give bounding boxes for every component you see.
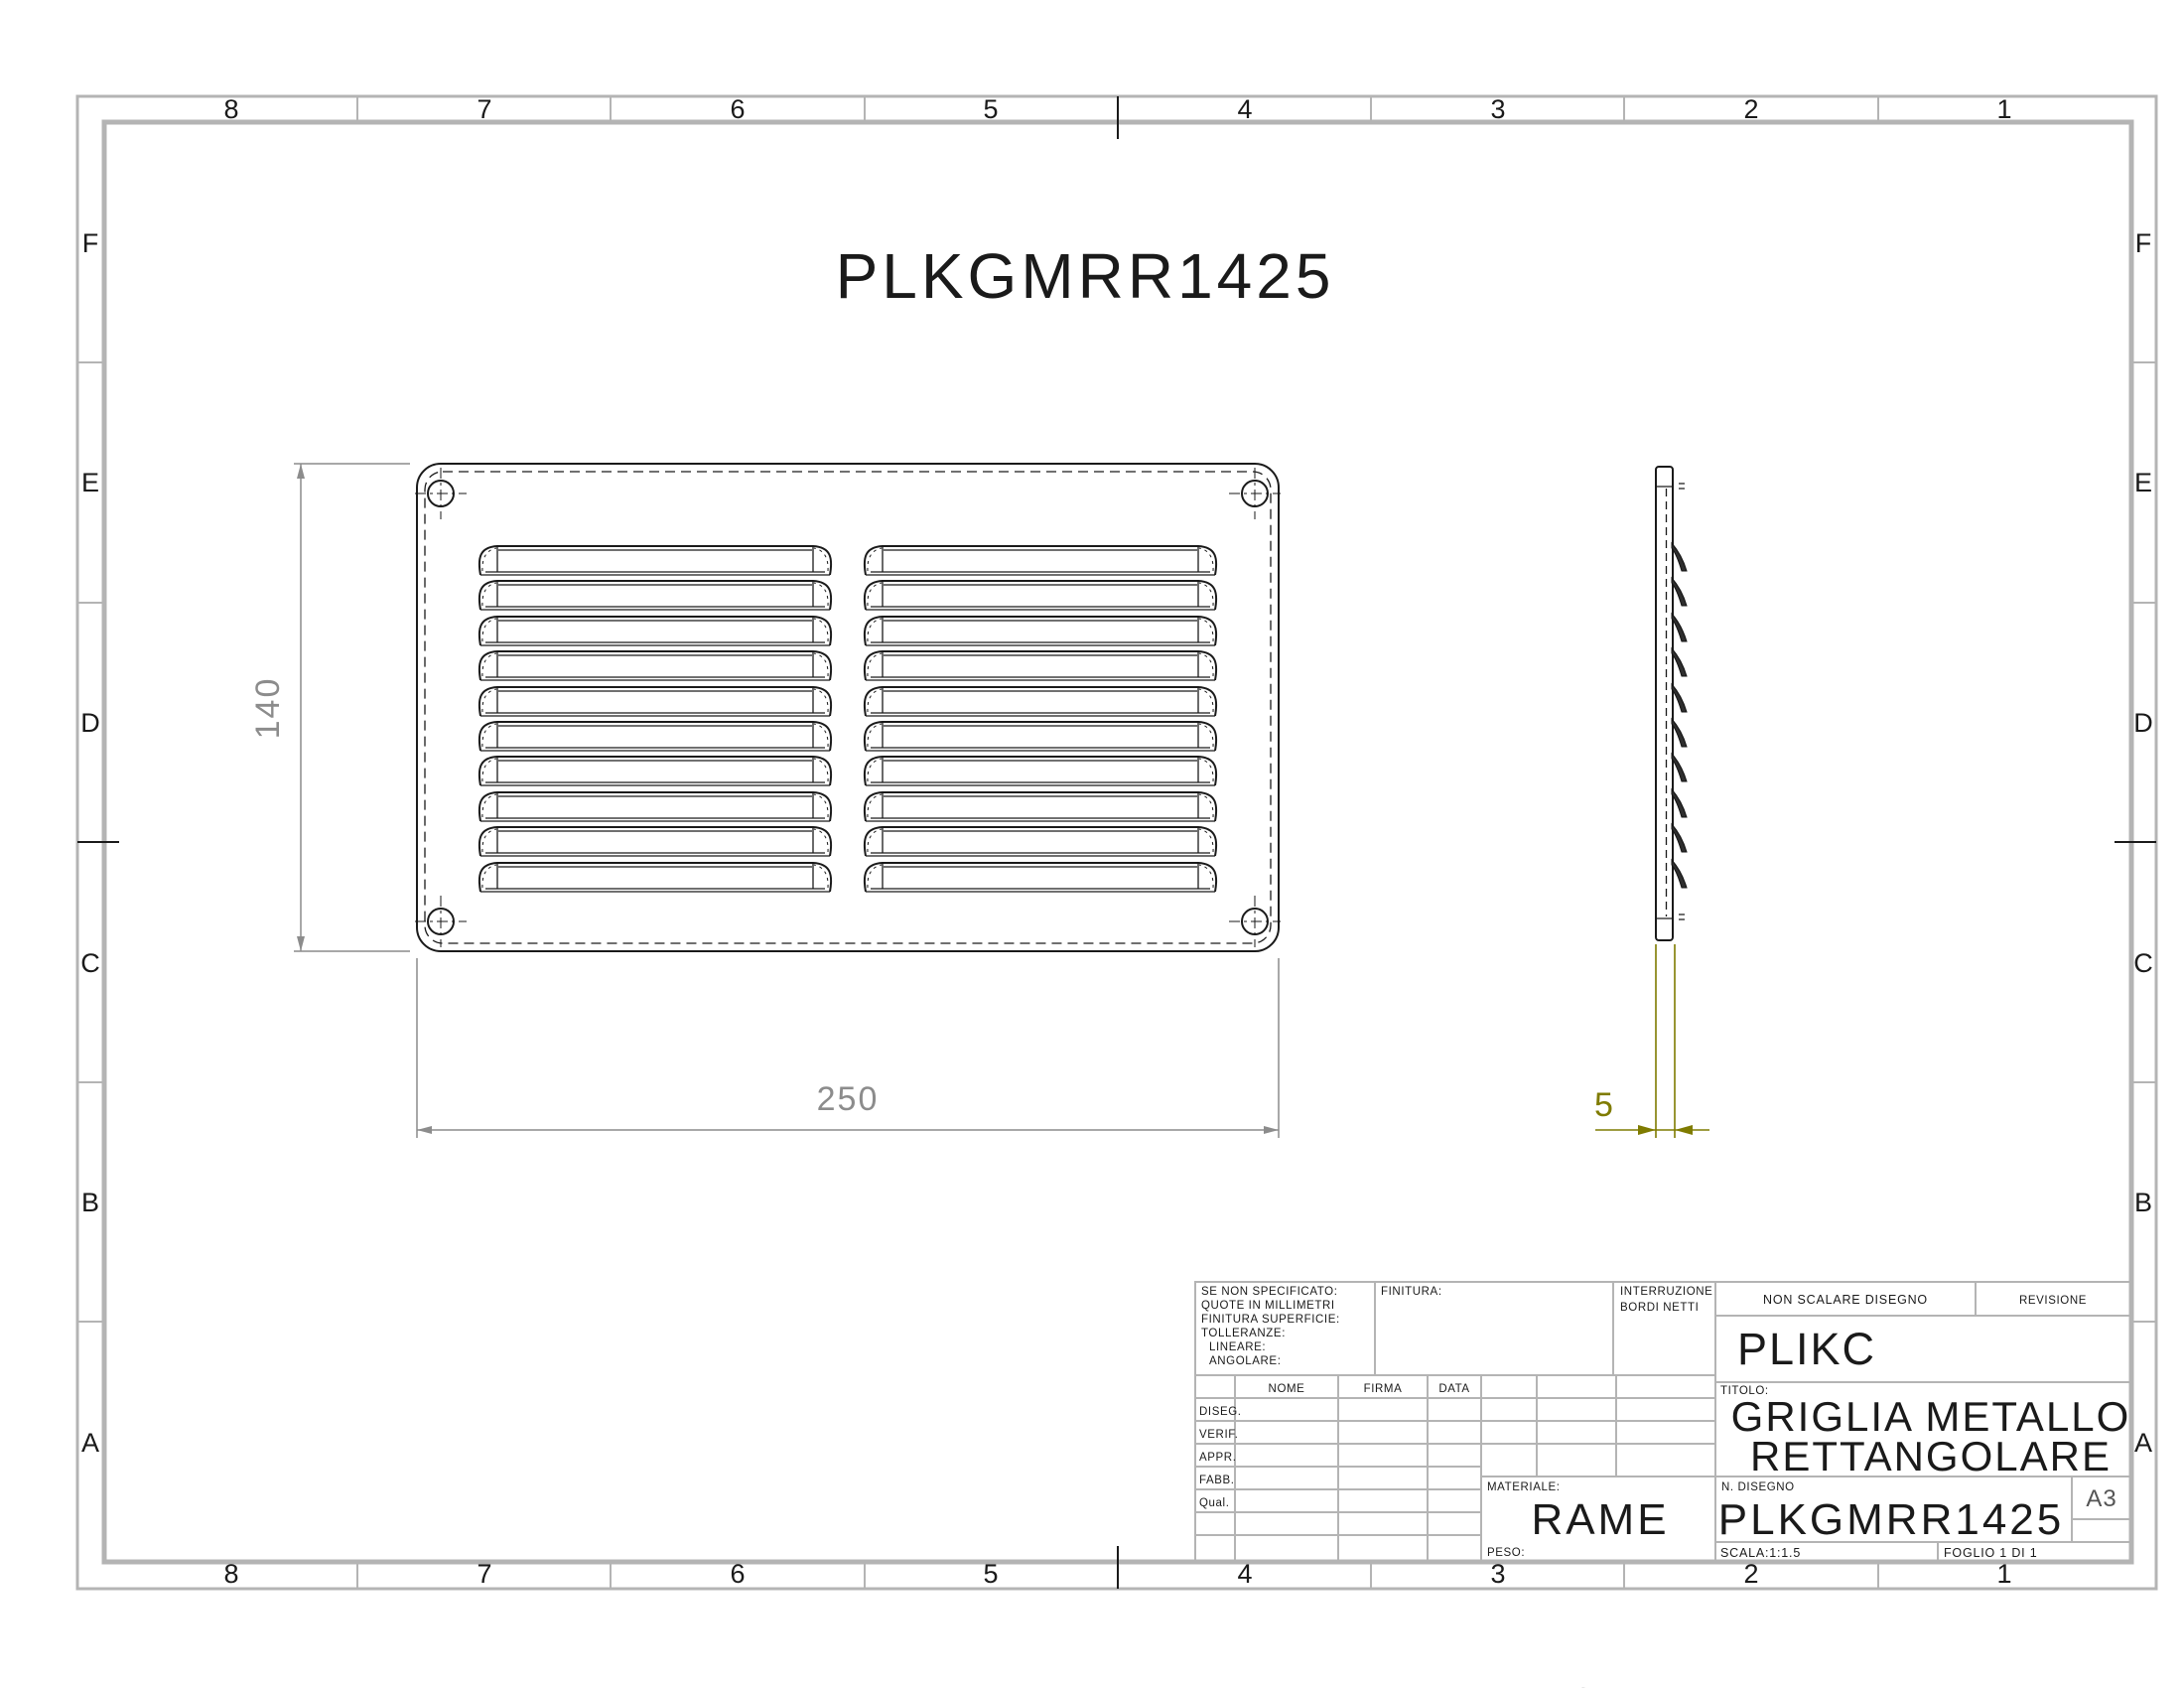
drawing-canvas: 8 7 6 5 4 3 2 1 8 7 6 5 4 3 2 1 F E D C … <box>0 0 2184 1688</box>
do-not-scale-note: NON SCALARE DISEGNO <box>1763 1293 1928 1307</box>
dimension-height-140: 140 <box>249 464 410 951</box>
grid-row-label: C <box>2133 948 2153 978</box>
tolerance-note-line: FINITURA SUPERFICIE: <box>1201 1314 1340 1326</box>
screw-hole-bottom-right <box>1229 896 1281 947</box>
edges-note: INTERRUZIONE <box>1620 1286 1712 1298</box>
column-header: NOME <box>1269 1383 1305 1395</box>
grid-col-label: 2 <box>1743 94 1758 124</box>
signoff-row-label: Qual. <box>1199 1497 1230 1509</box>
cropped-bottom-text: ALLUMINIO <box>1237 1676 1611 1688</box>
column-header: DATA <box>1438 1383 1469 1395</box>
grid-col-label: 4 <box>1237 1559 1252 1589</box>
louver-column-left <box>479 546 831 892</box>
tolerance-note-line: TOLLERANZE: <box>1201 1328 1286 1339</box>
grid-col-label: 3 <box>1490 94 1505 124</box>
grid-col-label: 2 <box>1743 1559 1758 1589</box>
grid-col-label: 1 <box>1996 1559 2011 1589</box>
grid-row-label: F <box>82 228 99 258</box>
grid-col-label: 6 <box>730 1559 745 1589</box>
grid-row-label: D <box>2133 708 2153 738</box>
grid-row-label: E <box>2134 468 2152 497</box>
grid-row-label: A <box>2134 1428 2152 1458</box>
louver-column-right <box>865 546 1216 892</box>
grid-col-label: 1 <box>1996 94 2011 124</box>
dimension-width-label: 250 <box>817 1080 880 1118</box>
grid-row-label: C <box>80 948 100 978</box>
tolerance-note: SE NON SPECIFICATO: QUOTE IN MILLIMETRI … <box>1201 1286 1340 1367</box>
side-view-grille <box>1656 467 1687 940</box>
grid-col-label: 5 <box>983 1559 998 1589</box>
grid-col-label: 5 <box>983 94 998 124</box>
scale-label: SCALA:1:1.5 <box>1720 1546 1801 1560</box>
dimension-thickness-5: 5 <box>1594 944 1709 1138</box>
screw-hole-bottom-left <box>415 896 467 947</box>
tolerance-note-line: LINEARE: <box>1209 1341 1266 1353</box>
screw-hole-top-left <box>415 468 467 519</box>
edges-note: BORDI NETTI <box>1620 1302 1699 1314</box>
column-header: FIRMA <box>1364 1383 1403 1395</box>
dimension-width-250: 250 <box>417 958 1279 1138</box>
drawing-no-value: PLKGMRR1425 <box>1718 1495 2064 1544</box>
dimension-height-label: 140 <box>249 677 287 740</box>
grid-row-label: D <box>80 708 100 738</box>
grid-col-label: 8 <box>223 1559 238 1589</box>
part-title-line2: RETTANGOLARE <box>1750 1433 2112 1479</box>
grid-row-label: F <box>2135 228 2152 258</box>
weight-label: PESO: <box>1487 1547 1525 1559</box>
front-view-grille <box>415 464 1281 951</box>
finish-label: FINITURA: <box>1381 1286 1442 1298</box>
grid-col-label: 3 <box>1490 1559 1505 1589</box>
title-block: SE NON SPECIFICATO: QUOTE IN MILLIMETRI … <box>1195 1282 2131 1562</box>
drawing-no-label: N. DISEGNO <box>1721 1481 1795 1493</box>
company-name: PLIKC <box>1737 1324 1876 1374</box>
tolerance-note-line: SE NON SPECIFICATO: <box>1201 1286 1338 1298</box>
tolerance-note-line: QUOTE IN MILLIMETRI <box>1201 1300 1335 1312</box>
grid-col-label: 4 <box>1237 94 1252 124</box>
grid-row-label: E <box>81 468 99 497</box>
signoff-row-label: APPR. <box>1199 1452 1237 1464</box>
screw-hole-top-right <box>1229 468 1281 519</box>
signoff-row-label: VERIF. <box>1199 1429 1238 1441</box>
grid-col-label: 7 <box>477 1559 491 1589</box>
page-title: PLKGMRR1425 <box>836 240 1335 312</box>
signoff-row-label: FABB. <box>1199 1475 1235 1486</box>
material-value: RAME <box>1531 1495 1669 1544</box>
dimension-thickness-label: 5 <box>1594 1086 1614 1124</box>
grid-row-label: A <box>81 1428 99 1458</box>
signoff-row-label: DISEG. <box>1199 1406 1242 1418</box>
material-label: MATERIALE: <box>1487 1481 1561 1493</box>
drawing-sheet: 8 7 6 5 4 3 2 1 8 7 6 5 4 3 2 1 F E D C … <box>0 0 2184 1688</box>
paper-size: A3 <box>2086 1485 2116 1512</box>
revision-label: REVISIONE <box>2019 1295 2087 1307</box>
grid-col-label: 6 <box>730 94 745 124</box>
tolerance-note-line: ANGOLARE: <box>1209 1355 1282 1367</box>
side-louver-flaps <box>1672 543 1687 888</box>
grid-col-label: 7 <box>477 94 491 124</box>
grid-row-label: B <box>81 1188 99 1217</box>
sheet-no-label: FOGLIO 1 DI 1 <box>1944 1546 2037 1560</box>
grid-row-label: B <box>2134 1188 2152 1217</box>
grid-col-label: 8 <box>223 94 238 124</box>
